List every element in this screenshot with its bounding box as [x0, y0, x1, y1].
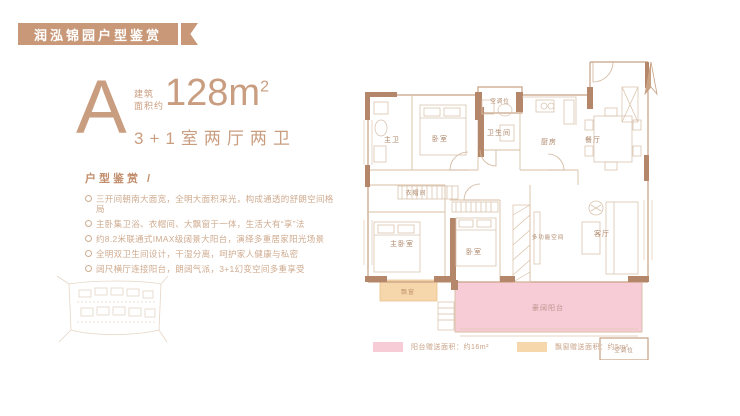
bullet-ring-icon: [85, 250, 92, 257]
room-label-bay-window: 飘窗: [401, 288, 415, 296]
bullet-ring-icon: [85, 195, 92, 202]
feature-text: 三开间朝南大面宽，全明大面积采光，构成通透的舒朗空间格局: [96, 194, 335, 214]
banner-title: 润泓锦园户型鉴赏: [18, 23, 178, 45]
area-value: 128m2: [165, 74, 269, 112]
rooms-line: 3+1室两厅两卫: [134, 124, 296, 149]
legend-item-bay-window: 飘窗赠送面积：约5m²: [517, 342, 629, 352]
banner-ribbon-icon: [181, 23, 198, 45]
feature-item: 三开间朝南大面宽，全明大面积采光，构成通透的舒朗空间格局: [85, 194, 335, 214]
legend-label-bay-window: 飘窗赠送面积：约5m²: [555, 342, 629, 352]
feature-item: 主卧集卫浴、衣帽间、大飘窗于一体，生活大有“享”法: [85, 219, 335, 229]
features-section: 户型鉴赏 / 三开间朝南大面宽，全明大面积采光，构成通透的舒朗空间格局 主卧集卫…: [85, 170, 335, 279]
feature-text: 约8.2米联通式IMAX级阔景大阳台，演绎多重居家阳光场景: [96, 234, 324, 244]
room-label-bedroom-north: 卧室: [432, 134, 448, 143]
site-plan-thumbnail: [55, 272, 170, 347]
legend-item-balcony: 阳台赠送面积：约16m²: [373, 342, 489, 352]
room-label-flex-space: 多功能空间: [532, 233, 565, 241]
wall-piers: [365, 62, 649, 290]
room-label-bathroom: 卫生间: [487, 128, 511, 137]
room-label-kitchen: 厨房: [541, 137, 557, 146]
area-exponent: 2: [260, 78, 269, 95]
room-label-cloakroom: 衣帽间: [405, 189, 426, 197]
area-label-line1: 建筑: [134, 88, 164, 100]
furniture: [374, 97, 641, 274]
feature-item: 约8.2米联通式IMAX级阔景大阳台，演绎多重居家阳光场景: [85, 234, 335, 244]
room-label-master-bath: 主卫: [384, 135, 400, 144]
page: 润泓锦园户型鉴赏 A 建筑 面积约 128m2 3+1室两厅两卫 户型鉴赏 / …: [0, 0, 740, 416]
plan-legend: 阳台赠送面积：约16m² 飘窗赠送面积：约5m²: [373, 342, 629, 352]
label-ac-top: 空调位: [490, 97, 510, 105]
feature-text: 全明双卫生间设计，干湿分离，呵护家人健康与私密: [96, 249, 298, 259]
room-label-master-bedroom: 主卧室: [390, 239, 414, 248]
area-label-line2: 面积约: [134, 100, 164, 112]
legend-swatch-pink: [373, 342, 403, 352]
room-label-living: 客厅: [594, 229, 610, 238]
area-label: 建筑 面积约: [134, 88, 164, 112]
unit-letter: A: [76, 70, 127, 146]
floor-plan: 主卫 卧室 卫生间 厨房 餐厅 衣帽间 主卧室 卧室 客厅 多功能空间 豪阔阳台…: [350, 50, 660, 360]
bullet-ring-icon: [85, 235, 92, 242]
doors: [450, 62, 613, 200]
room-label-dining: 餐厅: [585, 135, 601, 144]
room-label-bedroom-south: 卧室: [466, 247, 482, 256]
feature-text: 主卧集卫浴、衣帽间、大飘窗于一体，生活大有“享”法: [96, 219, 305, 229]
room-label-balcony: 豪阔阳台: [532, 303, 564, 312]
legend-swatch-orange: [517, 342, 547, 352]
feature-item: 全明双卫生间设计，干湿分离，呵护家人健康与私密: [85, 249, 335, 259]
bullet-ring-icon: [85, 220, 92, 227]
legend-label-balcony: 阳台赠送面积：约16m²: [411, 342, 489, 352]
features-heading: 户型鉴赏 /: [85, 170, 335, 186]
bullet-ring-icon: [85, 265, 92, 272]
banner-title-text: 润泓锦园户型鉴赏: [34, 25, 162, 44]
